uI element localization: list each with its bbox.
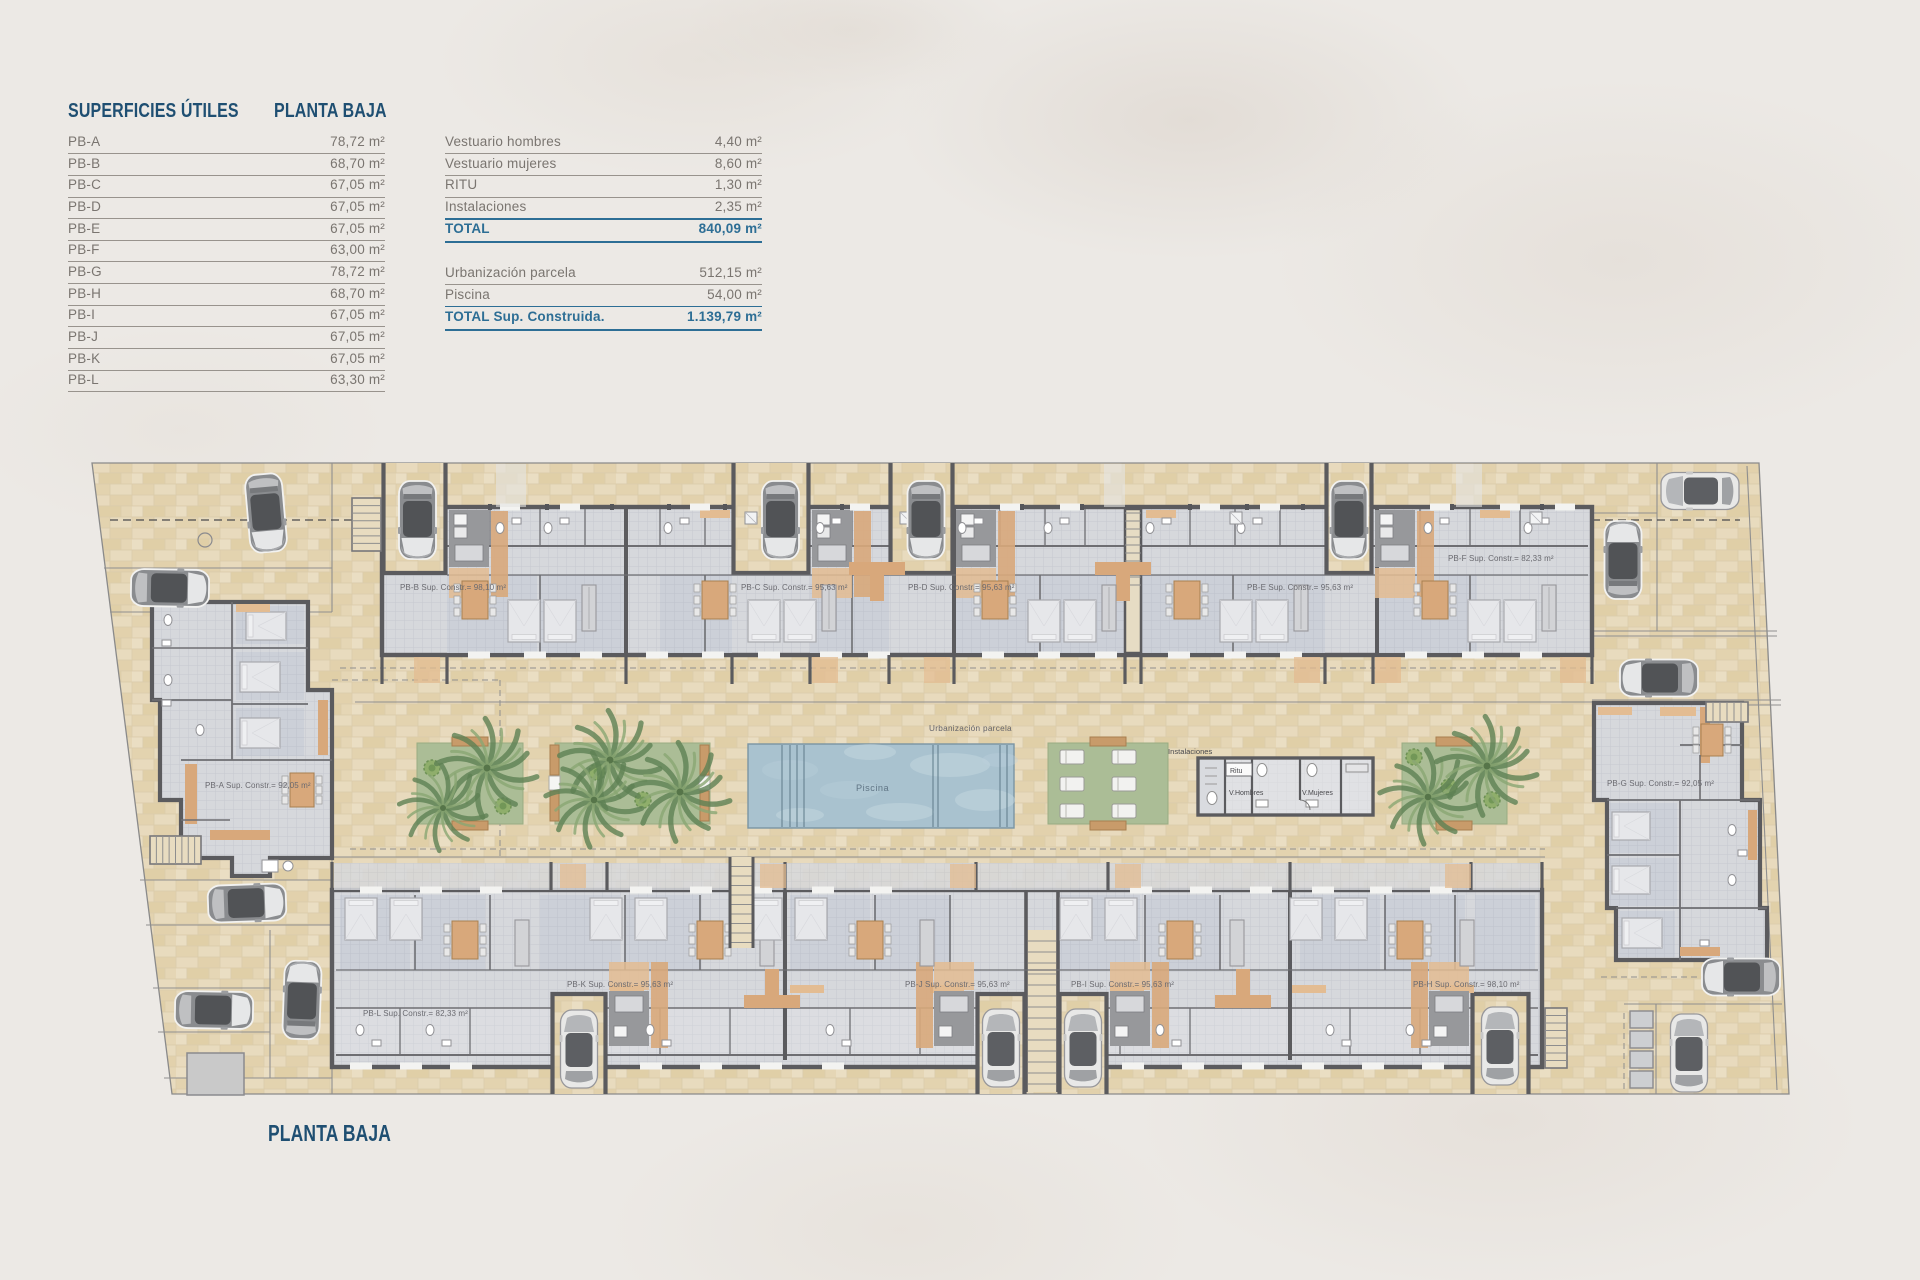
svg-text:Urbanización parcela: Urbanización parcela (929, 724, 1012, 733)
svg-text:PB-L Sup. Constr.= 82,33 m²: PB-L Sup. Constr.= 82,33 m² (363, 1009, 468, 1018)
svg-text:PB-C Sup. Constr.= 95,63 m²: PB-C Sup. Constr.= 95,63 m² (741, 583, 848, 592)
svg-text:PB-E Sup. Constr.= 95,63 m²: PB-E Sup. Constr.= 95,63 m² (1247, 583, 1353, 592)
svg-text:PB-I Sup. Constr.= 95,63 m²: PB-I Sup. Constr.= 95,63 m² (1071, 980, 1174, 989)
svg-text:PB-D Sup. Constr.= 95,63 m²: PB-D Sup. Constr.= 95,63 m² (908, 583, 1015, 592)
svg-text:PB-F Sup. Constr.= 82,33 m²: PB-F Sup. Constr.= 82,33 m² (1448, 554, 1554, 563)
svg-text:V.Mujeres: V.Mujeres (1302, 790, 1333, 797)
svg-text:PB-K Sup. Constr.= 95,63 m²: PB-K Sup. Constr.= 95,63 m² (567, 980, 673, 989)
svg-text:Ritu: Ritu (1230, 768, 1243, 775)
svg-text:PB-J Sup. Constr.= 95,63 m²: PB-J Sup. Constr.= 95,63 m² (905, 980, 1010, 989)
svg-text:Instalaciones: Instalaciones (1168, 747, 1213, 756)
svg-text:V.Hombres: V.Hombres (1229, 790, 1264, 797)
svg-text:PB-A Sup. Constr.= 92,05 m²: PB-A Sup. Constr.= 92,05 m² (205, 781, 311, 790)
svg-text:PB-H Sup. Constr.= 98,10 m²: PB-H Sup. Constr.= 98,10 m² (1413, 980, 1520, 989)
svg-text:PB-B Sup. Constr.= 98,10 m²: PB-B Sup. Constr.= 98,10 m² (400, 583, 506, 592)
svg-text:PB-G Sup. Constr.= 92,05 m²: PB-G Sup. Constr.= 92,05 m² (1607, 779, 1714, 788)
svg-text:Piscina: Piscina (856, 783, 890, 793)
